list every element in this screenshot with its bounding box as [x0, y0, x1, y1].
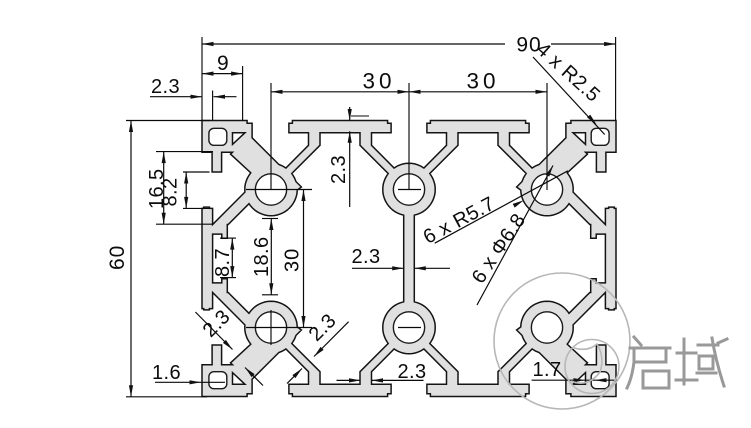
svg-text:1.6: 1.6: [152, 362, 181, 384]
svg-text:2.3: 2.3: [397, 361, 426, 383]
svg-text:1.7: 1.7: [532, 359, 561, 381]
svg-text:60: 60: [106, 245, 129, 270]
svg-text:30: 30: [466, 69, 499, 94]
svg-text:8.7: 8.7: [212, 248, 234, 277]
svg-text:2.3: 2.3: [328, 155, 350, 184]
svg-text:2.3: 2.3: [151, 76, 180, 98]
svg-text:2.3: 2.3: [351, 246, 380, 268]
svg-text:18.6: 18.6: [251, 236, 273, 277]
svg-text:9: 9: [217, 52, 229, 75]
svg-text:30: 30: [282, 248, 304, 272]
svg-text:8.2: 8.2: [159, 177, 181, 206]
svg-text:30: 30: [362, 69, 395, 94]
